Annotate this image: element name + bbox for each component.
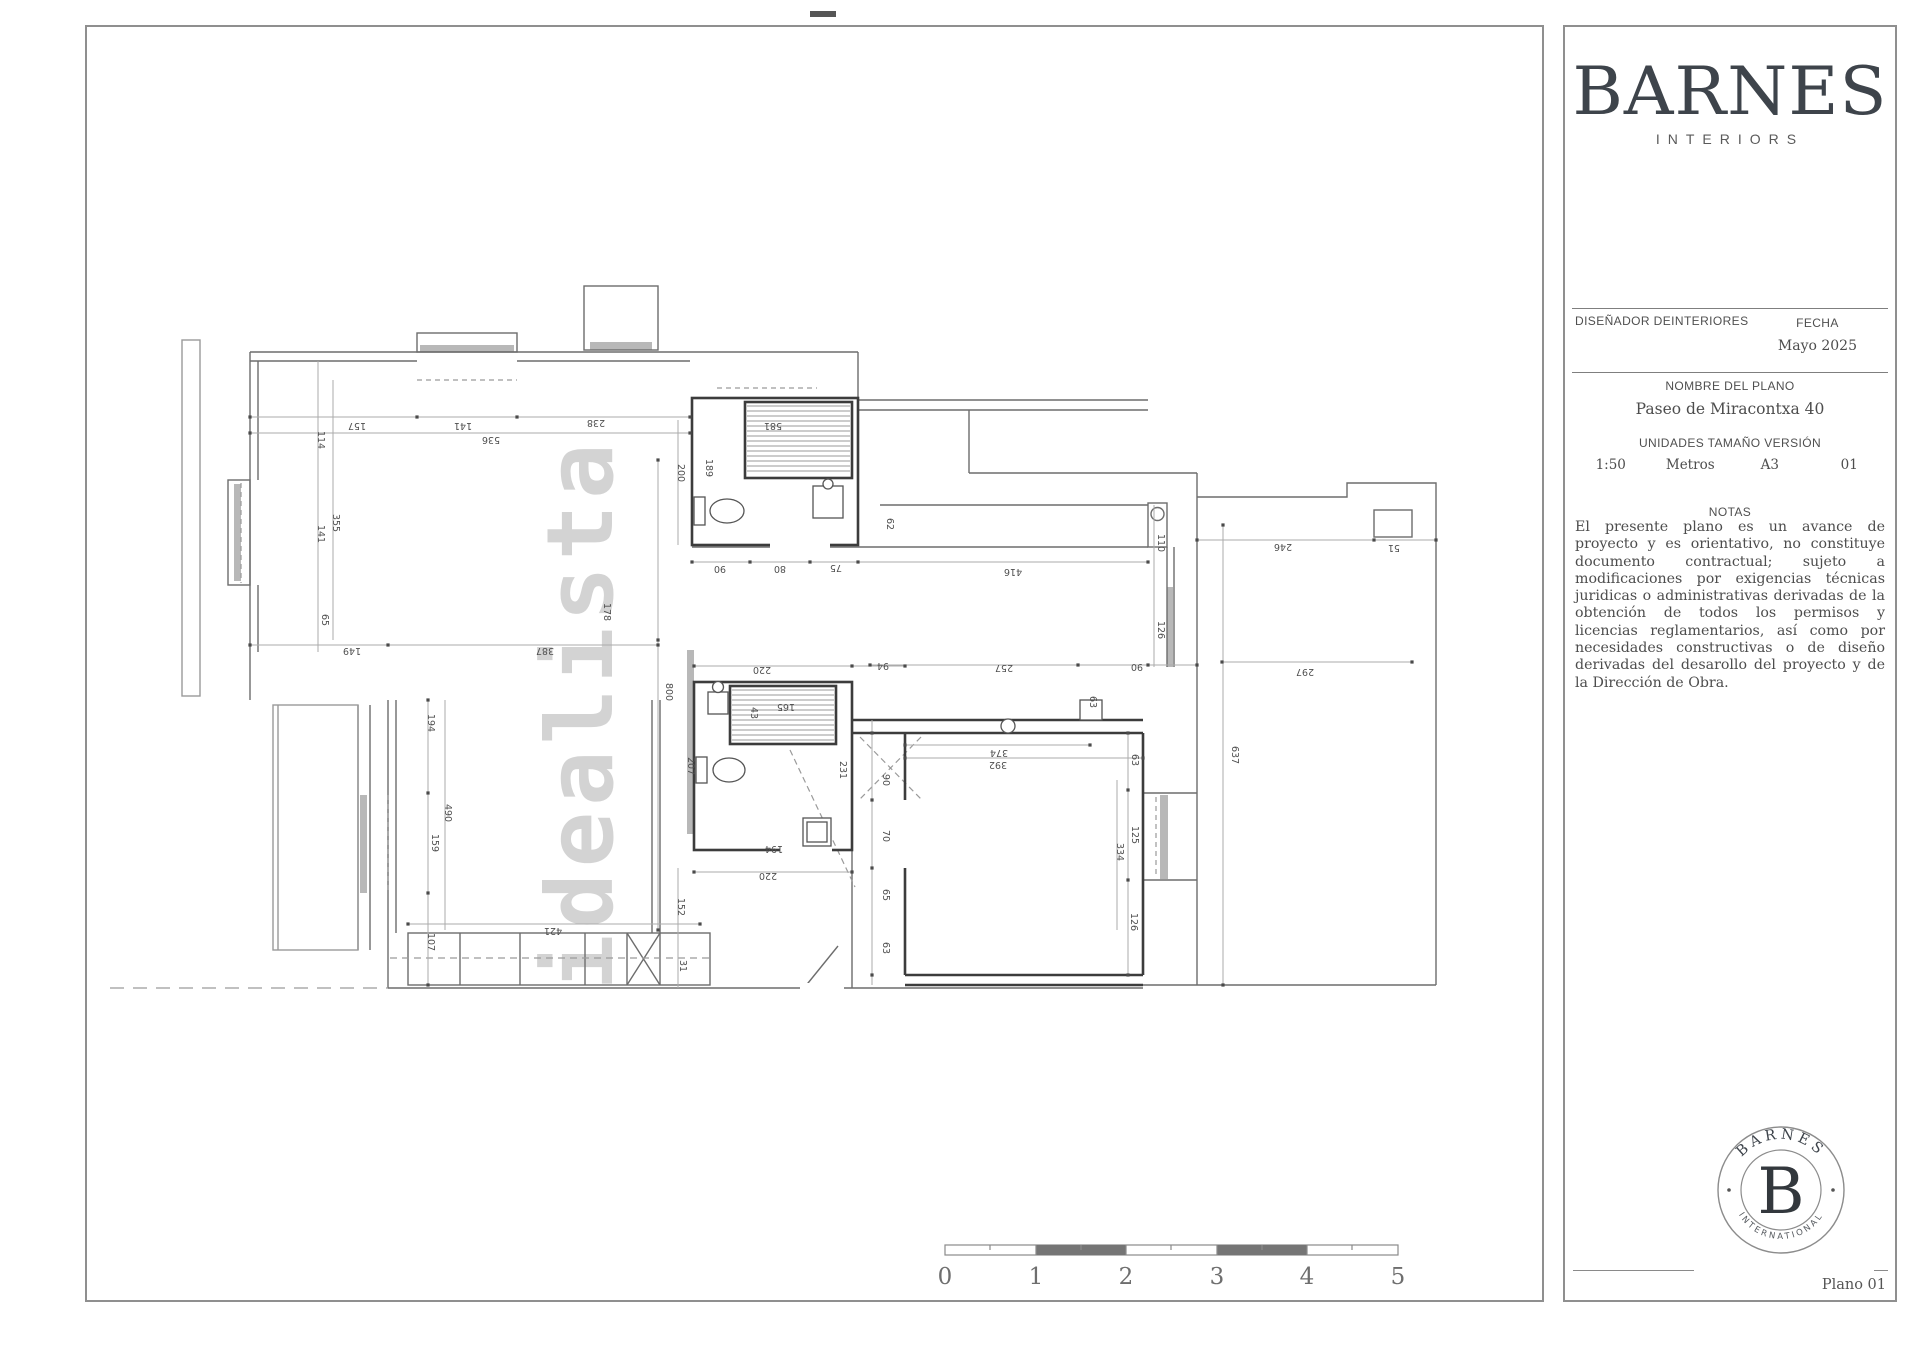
svg-text:141: 141 [315, 525, 326, 543]
svg-text:126: 126 [1155, 621, 1166, 639]
svg-text:246: 246 [1274, 541, 1292, 552]
svg-text:3: 3 [1210, 1264, 1225, 1290]
plan-name-value: Paseo de Miracontxa 40 [1565, 400, 1895, 418]
svg-text:200: 200 [675, 464, 686, 482]
plan-walls-thin [182, 286, 1436, 988]
scale-bar-numbers: 012345 [938, 1264, 1406, 1290]
divider [1572, 372, 1888, 373]
svg-text:220: 220 [759, 870, 777, 881]
fecha-label: FECHA [1796, 316, 1839, 330]
svg-text:637: 637 [1229, 746, 1240, 764]
title-block-panel: BARNES INTERIORS DISEÑADOR DEINTERIORES … [1563, 25, 1897, 1302]
brand-sublabel: INTERIORS [1565, 131, 1895, 147]
sheet-top-mark [810, 11, 836, 17]
svg-text:220: 220 [753, 664, 771, 675]
svg-text:65: 65 [319, 614, 330, 626]
svg-text:90: 90 [880, 774, 891, 786]
svg-text:165: 165 [777, 701, 795, 712]
divider [1572, 308, 1888, 309]
svg-text:416: 416 [1004, 566, 1022, 577]
svg-text:90: 90 [1131, 661, 1143, 672]
size-value: A3 [1730, 457, 1810, 473]
svg-text:110: 110 [1155, 534, 1166, 552]
plan-sheet-page: idealista [0, 0, 1920, 1357]
svg-text:4: 4 [1300, 1264, 1315, 1290]
svg-text:355: 355 [330, 514, 341, 532]
svg-text:0: 0 [938, 1264, 953, 1290]
svg-text:257: 257 [995, 662, 1013, 673]
svg-text:490: 490 [442, 804, 453, 822]
svg-text:5: 5 [1391, 1264, 1406, 1290]
units-label: UNIDADES TAMAÑO VERSIÓN [1565, 436, 1895, 450]
watermark-text: idealista [527, 438, 634, 991]
svg-text:178: 178 [601, 603, 612, 621]
bath-fixtures [694, 479, 1102, 846]
svg-text:63: 63 [1087, 696, 1098, 708]
svg-text:238: 238 [587, 417, 605, 428]
svg-text:75: 75 [830, 562, 842, 573]
svg-text:2: 2 [1119, 1264, 1134, 1290]
plan-walls-thick [692, 398, 1143, 985]
svg-text:1: 1 [1029, 1264, 1044, 1290]
units-values-row: 1:50 Metros A3 01 [1571, 457, 1889, 473]
svg-text:63: 63 [880, 942, 891, 954]
notas-text: El presente plano es un avance de proyec… [1575, 519, 1885, 692]
svg-text:125: 125 [1129, 826, 1140, 844]
svg-text:149: 149 [343, 645, 361, 656]
svg-text:43: 43 [748, 707, 759, 719]
svg-text:63: 63 [1129, 754, 1140, 766]
svg-text:80: 80 [774, 563, 786, 574]
svg-text:126: 126 [1128, 913, 1139, 931]
svg-text:374: 374 [990, 747, 1008, 758]
svg-text:114: 114 [315, 431, 326, 449]
svg-text:31: 31 [677, 960, 688, 972]
svg-text:194: 194 [425, 714, 436, 732]
svg-text:297: 297 [1296, 666, 1314, 677]
svg-text:157: 157 [348, 420, 366, 431]
svg-text:800: 800 [663, 683, 674, 701]
svg-text:141: 141 [454, 420, 472, 431]
svg-text:207: 207 [685, 757, 696, 775]
door-openings [770, 538, 844, 993]
brand-logo: BARNES [1558, 53, 1901, 130]
svg-text:334: 334 [1114, 843, 1125, 861]
svg-text:107: 107 [425, 933, 436, 951]
svg-text:581: 581 [764, 420, 782, 431]
designer-label: DISEÑADOR DEINTERIORES [1575, 314, 1749, 354]
svg-text:94: 94 [877, 660, 889, 671]
svg-text:231: 231 [837, 761, 848, 779]
svg-text:159: 159 [429, 834, 440, 852]
svg-text:65: 65 [880, 889, 891, 901]
seal-letter: B [1757, 1155, 1804, 1229]
svg-text:392: 392 [989, 759, 1007, 770]
svg-text:51: 51 [1388, 542, 1400, 553]
barnes-seal: BARNES INTERNATIONAL B [1716, 1125, 1846, 1255]
units-value: Metros [1651, 457, 1731, 473]
page-label: Plano 01 [1822, 1277, 1886, 1293]
window-glass-bars [234, 342, 1173, 893]
svg-text:62: 62 [884, 518, 895, 530]
svg-text:90: 90 [714, 563, 726, 574]
designer-fecha-row: DISEÑADOR DEINTERIORES FECHA Mayo 2025 [1575, 314, 1887, 354]
corner-dash [1874, 1270, 1888, 1271]
scale-value: 1:50 [1571, 457, 1651, 473]
svg-text:152: 152 [675, 898, 686, 916]
fecha-value: Mayo 2025 [1778, 338, 1857, 354]
svg-text:194: 194 [765, 843, 783, 854]
notas-label: NOTAS [1565, 505, 1895, 519]
svg-text:387: 387 [536, 645, 554, 656]
signature-line [1573, 1270, 1694, 1271]
scale-bar: 012345 [938, 1245, 1406, 1290]
svg-text:421: 421 [544, 925, 562, 936]
plan-name-label: NOMBRE DEL PLANO [1565, 379, 1895, 393]
svg-text:189: 189 [703, 459, 714, 477]
svg-text:70: 70 [880, 830, 891, 842]
version-value: 01 [1810, 457, 1890, 473]
svg-text:536: 536 [482, 434, 500, 445]
